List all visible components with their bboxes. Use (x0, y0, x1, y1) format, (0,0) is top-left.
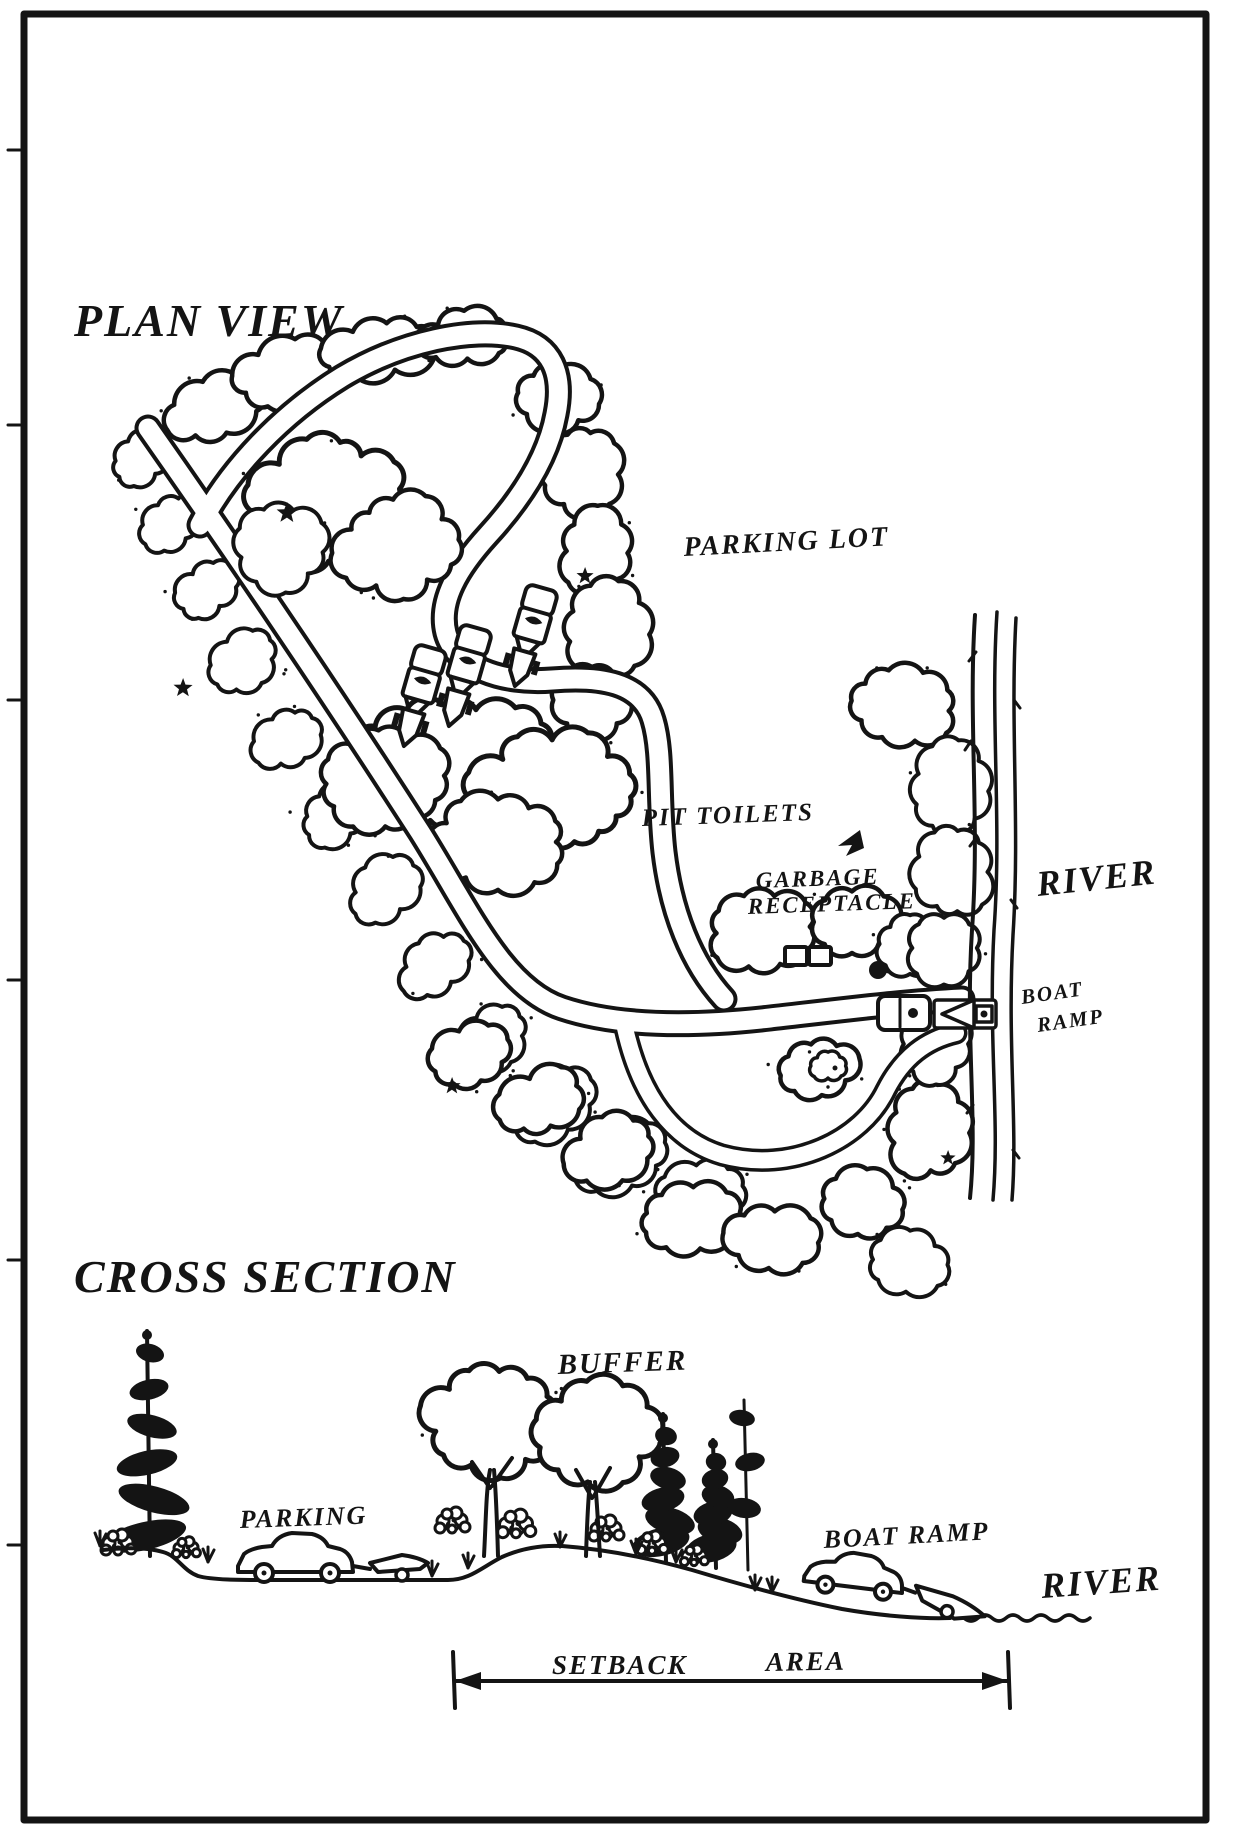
shrub-icon (589, 1515, 624, 1541)
garbage-receptacle-dot (869, 961, 887, 979)
scan-speckle (511, 413, 514, 416)
border-rect (24, 14, 1206, 1820)
parking-lot-label: Parking Lot (682, 521, 890, 563)
scan-speckle (288, 810, 291, 813)
scanned-site-plan-page: Plan View Parking Lot Pit Toilets Garbag… (0, 0, 1242, 1836)
scan-speckle (479, 1002, 482, 1005)
scan-speckle (926, 666, 929, 669)
scan-speckle (577, 585, 580, 588)
scan-speckle (617, 1184, 620, 1187)
scan-speckle (628, 521, 631, 524)
garbage-label-line1: Garbage (755, 864, 880, 893)
shrub-leaf (686, 1546, 694, 1554)
scan-speckle (347, 844, 350, 847)
scan-speckle (735, 1265, 738, 1268)
shrub-leaf (680, 1558, 688, 1566)
buffer-label: Buffer (556, 1344, 688, 1381)
scan-speckle (411, 992, 414, 995)
scan-speckle (968, 823, 971, 826)
scan-speckle (560, 1387, 563, 1390)
scan-speckle (512, 1069, 515, 1072)
pit-toilet-building (785, 947, 807, 965)
turnaround-island (767, 1039, 864, 1101)
shrub-leaf (525, 1526, 536, 1537)
scan-speckle (188, 376, 191, 379)
parking-island-trees (233, 432, 462, 601)
tree-cluster-icon (350, 854, 423, 924)
scan-speckle (242, 472, 245, 475)
scan-speckle (373, 834, 376, 837)
scan-speckle (984, 952, 987, 955)
scan-speckle (573, 589, 576, 592)
scan-speckle (640, 791, 643, 794)
scan-speckle (446, 307, 449, 310)
deciduous-crown-icon (531, 1374, 663, 1491)
tree-cluster-icon (910, 736, 992, 835)
tree-cluster-icon (850, 663, 953, 748)
river-label-plan: River (1034, 852, 1159, 904)
pit-toilet-buildings (785, 947, 831, 965)
scan-speckle (384, 922, 387, 925)
plan-view-title: Plan View (73, 295, 345, 346)
shrub-berry (509, 1526, 513, 1530)
setback-label-word2: Area (764, 1646, 847, 1677)
parking-label: Parking (238, 1501, 368, 1534)
scan-speckle (909, 771, 912, 774)
conifer-top (142, 1330, 152, 1340)
shrub-leaf (435, 1523, 445, 1533)
shrub-leaf (691, 1559, 697, 1565)
river-shoreline (965, 612, 1020, 1200)
cross-section-title: Cross Section (74, 1251, 457, 1302)
boat-ramp-label-line1: Boat (1018, 976, 1085, 1009)
scan-speckle (403, 315, 406, 318)
tree-cluster-icon (208, 628, 275, 693)
boat-access-site-sketch: Plan View Parking Lot Pit Toilets Garbag… (0, 0, 1242, 1836)
grass-tuft-icon (463, 1553, 474, 1568)
setback-dimension: Setback Area (453, 1646, 1010, 1708)
tree-cluster-icon (722, 1205, 821, 1274)
scan-speckle (872, 933, 875, 936)
boat-ramp-label-line2: Ramp (1034, 1004, 1105, 1037)
scan-speckle (808, 1050, 811, 1053)
scan-speckle (284, 668, 287, 671)
scan-speckle (363, 832, 366, 835)
shrub-berry (606, 1526, 611, 1531)
scan-speckle (134, 508, 137, 511)
scan-speckle (554, 1391, 557, 1394)
scan-speckle (387, 855, 390, 858)
scan-speckle (587, 1092, 590, 1095)
conifer-branch (127, 1375, 170, 1403)
shrub-leaf (602, 1533, 610, 1541)
scan-speckle (908, 1186, 911, 1189)
shrub-leaf (183, 1551, 189, 1557)
scan-speckle (117, 478, 120, 481)
scan-speckle (427, 359, 430, 362)
margin-tick-marks (8, 150, 20, 1545)
scan-speckle (797, 1269, 800, 1272)
shrub-leaf (505, 1511, 516, 1522)
scan-speckle (421, 1433, 424, 1436)
conifer-branch (134, 1341, 166, 1366)
toilet-pointer-arrow-icon (838, 830, 864, 856)
pit-toilets-label: Pit Toilets (640, 799, 814, 832)
shrub-berry (689, 1557, 692, 1560)
scan-speckle (911, 973, 914, 976)
scan-speckle (635, 1232, 638, 1235)
conifer-branch (648, 1463, 689, 1494)
tree-cluster-icon (428, 1021, 511, 1089)
shrub-berry (186, 1545, 190, 1549)
shrub-leaf (460, 1522, 470, 1532)
left-arrowhead-icon (455, 1672, 481, 1690)
river-water-line-2 (1011, 618, 1016, 1200)
river-water-line-1 (992, 612, 997, 1200)
shrub-icon (172, 1537, 200, 1558)
scan-speckle (323, 521, 326, 524)
scan-speckle (282, 672, 285, 675)
scan-speckle (257, 713, 260, 716)
scan-speckle (944, 1283, 947, 1286)
scan-speckle (490, 791, 493, 794)
scan-speckle (767, 1063, 770, 1066)
conifer-branch (115, 1477, 192, 1521)
shrub-icon (497, 1509, 536, 1538)
scan-speckle (163, 590, 166, 593)
tree-cluster-icon (493, 1064, 584, 1134)
shrub-leaf (512, 1529, 521, 1538)
scan-speckle (191, 618, 194, 621)
scan-speckle (903, 1179, 906, 1182)
shrub-leaf (448, 1525, 456, 1533)
conifer-branch (704, 1451, 729, 1474)
scan-speckle (703, 1180, 706, 1183)
tree-cluster-icon (909, 826, 993, 915)
shrub-berry (515, 1521, 521, 1527)
boat-launch-vehicle-icon (878, 996, 996, 1030)
tree-cluster-icon (399, 933, 472, 999)
scan-speckle (372, 596, 375, 599)
shrub-leaf (108, 1531, 118, 1541)
scan-speckle (882, 1128, 885, 1131)
conifer-top (658, 1413, 668, 1423)
scan-speckle (599, 383, 602, 386)
scan-speckle (293, 705, 296, 708)
boat-ramp-label-cs: Boat Ramp (822, 1516, 990, 1554)
conifer-top (708, 1439, 718, 1449)
grass-tuft-icon (203, 1547, 214, 1562)
parked-car-side-icon (238, 1533, 428, 1582)
scan-speckle (745, 1173, 748, 1176)
pit-toilet-building (809, 947, 831, 965)
right-arrowhead-icon (982, 1672, 1008, 1690)
shrub-leaf (648, 1547, 655, 1554)
scan-speckle (860, 1077, 863, 1080)
shrub-leaf (192, 1549, 200, 1557)
scan-speckle (875, 1233, 878, 1236)
setback-label-word1: Setback (552, 1650, 688, 1680)
shrub-berry (647, 1544, 651, 1548)
star-plant-icon (174, 678, 193, 696)
conifer-branch (125, 1409, 180, 1443)
scan-speckle (875, 666, 878, 669)
scan-speckle (631, 574, 634, 577)
tree-cluster-icon (564, 576, 653, 677)
river-label-cs: River (1039, 1558, 1163, 1606)
cross-section-section: Cross Section Buffer Parking Boat Ramp R… (74, 1251, 1162, 1708)
shrub-berry (118, 1540, 123, 1545)
launching-car-boat-icon (801, 1547, 990, 1622)
scan-speckle (593, 1110, 596, 1113)
tree-cluster-icon (251, 710, 322, 769)
shrub-leaf (442, 1509, 452, 1519)
shrub-leaf (700, 1557, 708, 1565)
scan-speckle (360, 591, 363, 594)
scan-speckle (656, 1168, 659, 1171)
shrub-leaf (178, 1538, 186, 1546)
scan-speckle (475, 1090, 478, 1093)
scan-speckle (642, 1190, 645, 1193)
shrub-icon (435, 1507, 470, 1533)
scan-speckle (710, 954, 713, 957)
scan-speckle (826, 1085, 829, 1088)
shrub-berry (452, 1518, 457, 1523)
tree-cluster-icon (870, 1227, 949, 1297)
tree-cluster-icon (888, 1080, 973, 1179)
shrub-berry (446, 1522, 450, 1526)
scan-speckle (609, 741, 612, 744)
shrub-berry (181, 1549, 184, 1552)
conifer-tree-icon (101, 1330, 193, 1559)
shrub-berry (652, 1540, 657, 1545)
scan-speckle (330, 439, 333, 442)
shrub-leaf (659, 1544, 668, 1553)
scan-speckle (530, 1016, 533, 1019)
shrub-leaf (614, 1530, 624, 1540)
shrub-leaf (643, 1533, 652, 1542)
plan-view-section: Plan View Parking Lot Pit Toilets Garbag… (73, 295, 1158, 1297)
scan-speckle (328, 560, 331, 563)
scan-speckle (160, 409, 163, 412)
shrub-berry (694, 1553, 698, 1557)
island-tree-dot (833, 1066, 838, 1071)
